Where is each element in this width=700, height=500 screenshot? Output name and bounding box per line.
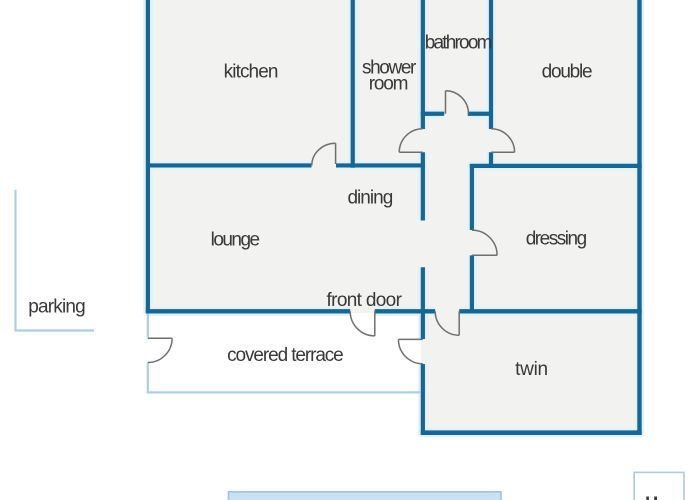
svg-text:kitchen: kitchen — [224, 61, 278, 82]
svg-text:dressing: dressing — [526, 229, 587, 250]
svg-text:parking: parking — [28, 297, 85, 318]
svg-text:twin: twin — [515, 359, 548, 380]
svg-text:room: room — [369, 74, 408, 95]
svg-text:bathroom: bathroom — [425, 33, 492, 54]
svg-text:lounge: lounge — [211, 230, 260, 251]
svg-text:dining: dining — [347, 187, 392, 208]
svg-text:front door: front door — [327, 290, 403, 311]
svg-text:covered terrace: covered terrace — [227, 345, 343, 366]
svg-text:double: double — [542, 61, 592, 82]
